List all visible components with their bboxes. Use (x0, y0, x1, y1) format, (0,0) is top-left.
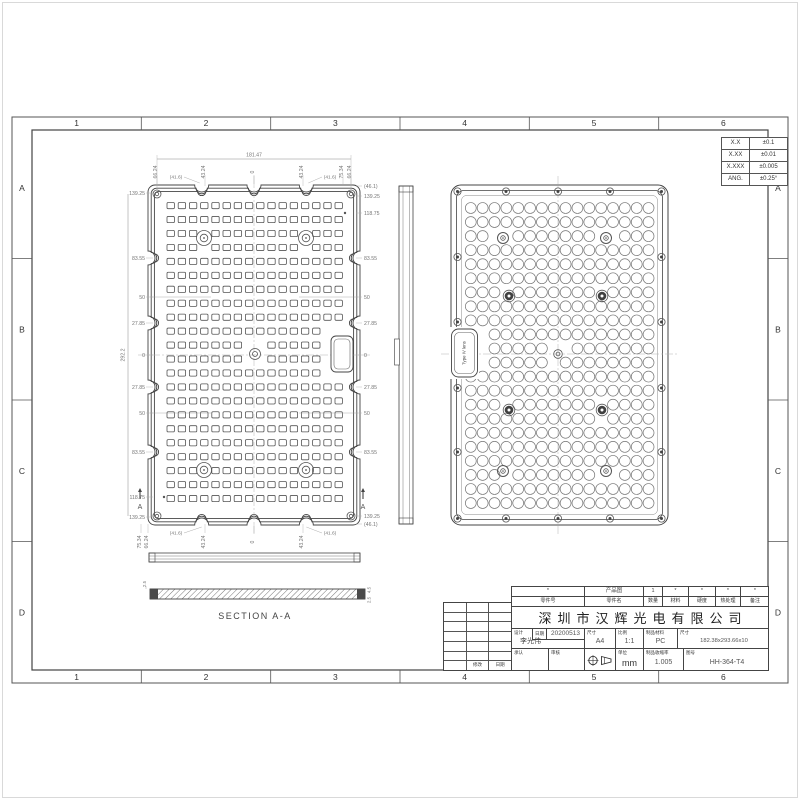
dimension-label: (46.1) (364, 184, 378, 190)
projection-symbol-icon (587, 654, 614, 667)
paper-size-cell: 尺寸 A4 (585, 629, 616, 648)
tolerance-value: ±0.1 (750, 138, 787, 149)
dimension-label: 118.75 (130, 495, 146, 501)
dimension-label: 43.24 (201, 535, 207, 548)
lens-type-tab-label: Type IV lens (462, 341, 467, 365)
zone-column-label: 6 (721, 118, 726, 128)
projection-cell (585, 649, 616, 671)
dimension-label: 50 (364, 295, 370, 301)
revision-cell (444, 652, 467, 661)
zone-column-label: 3 (333, 672, 338, 682)
dimension-label: (41.6) (170, 531, 183, 537)
zone-column-label: 5 (592, 118, 597, 128)
revision-table: 修改日期 (443, 602, 512, 671)
zone-column-label: 6 (721, 672, 726, 682)
company-name: 深圳市汉辉光电有限公司 (512, 607, 768, 629)
tolerance-row: X.XX±0.01 (722, 150, 787, 162)
dimension-label: 50 (364, 411, 370, 417)
designer-cell: 设计 日期 20200513 李光伟 (512, 629, 585, 648)
zone-column-label: 4 (462, 672, 467, 682)
revision-row (444, 632, 511, 642)
revision-row (444, 603, 511, 613)
zone-row-label: B (19, 324, 25, 334)
revision-cell (467, 652, 490, 661)
overall-height-dim: 292.2 (121, 348, 127, 361)
revision-cell: 修改 (467, 661, 490, 670)
side-view-strip (395, 186, 414, 524)
revision-row (444, 642, 511, 652)
dimension-label: 0 (364, 353, 367, 359)
tolerance-label: X.XX (722, 150, 750, 161)
dimension-label: 43.24 (299, 165, 305, 178)
bottom-edge-view (149, 553, 360, 562)
dimension-label: 43.24 (201, 165, 207, 178)
revision-cell: 日期 (489, 661, 511, 670)
tolerance-label: X.X (722, 138, 750, 149)
part-header-label: 零件名 (585, 597, 644, 606)
back-view: Type IV lens (441, 176, 678, 534)
part-header-value: * (663, 587, 689, 596)
part-header-label: 备注 (741, 597, 769, 606)
dimension-label: 43.24 (299, 535, 305, 548)
size-cell: 尺寸 182.38x293.66x10 (678, 629, 770, 648)
zone-column-label: 2 (204, 118, 209, 128)
drawing-number-cell: 图号 HH-364-T4 (684, 649, 770, 671)
material-cell: 制品材料 PC (644, 629, 678, 648)
approve-cell: 承认 (512, 649, 549, 671)
part-header-label: 数量 (644, 597, 663, 606)
zone-row-label: A (19, 183, 25, 193)
tolerance-row: X.X±0.1 (722, 138, 787, 150)
zone-row-label: C (19, 466, 25, 476)
dimension-label: 27.85 (132, 385, 145, 391)
section-arrow-label: A (138, 504, 143, 511)
zone-column-label: 1 (74, 118, 79, 128)
dimension-label: 83.55 (364, 256, 377, 262)
dimension-label: 0 (250, 170, 256, 173)
front-view (138, 176, 370, 534)
dimension-label: (41.6) (324, 175, 337, 181)
size-value: 182.38x293.66x10 (678, 629, 770, 648)
title-block: 修改日期 *产品图1**** 零件号零件名数量材料硬度热处理备注 深圳市汉辉光电… (443, 586, 769, 671)
dimension-label: 139.25 (364, 194, 380, 200)
dimension-label: 75.34 (137, 535, 143, 548)
zone-column-label: 1 (74, 672, 79, 682)
drawing-views: 112233445566AABBCCDD66.2443.24043.2475.3… (0, 0, 800, 800)
part-header-value: * (741, 587, 769, 596)
revision-cell (467, 632, 490, 641)
tolerance-row: X.XXX±0.005 (722, 162, 787, 174)
dimension-label: (41.6) (324, 531, 337, 537)
dimension-label: 83.55 (132, 450, 145, 456)
tolerance-value: ±0.005 (750, 162, 787, 173)
dimension-label: (46.1) (364, 522, 378, 528)
zone-column-label: 3 (333, 118, 338, 128)
dimension-label: 66.24 (153, 165, 159, 178)
design-label: 设计 (514, 630, 523, 636)
part-header-label: 零件号 (512, 597, 585, 606)
tolerance-row: ANG.±0.25° (722, 174, 787, 185)
revision-cell (489, 632, 511, 641)
part-header-label: 热处理 (716, 597, 741, 606)
zone-row-label: D (775, 607, 781, 617)
tolerance-value: ±0.01 (750, 150, 787, 161)
scale-cell: 比例 1:1 (616, 629, 644, 648)
date-value: 20200513 (547, 629, 584, 639)
revision-cell (444, 632, 467, 641)
tolerance-label: X.XXX (722, 162, 750, 173)
revision-row: 修改日期 (444, 661, 511, 670)
revision-cell (489, 652, 511, 661)
dimension-label: 27.85 (364, 385, 377, 391)
revision-cell (444, 613, 467, 622)
zone-column-label: 2 (204, 672, 209, 682)
dimension-label: 4.5 (367, 586, 372, 593)
zone-row-label: C (775, 466, 781, 476)
designer-name: 李光伟 (520, 636, 541, 646)
zone-column-label: 5 (592, 672, 597, 682)
revision-cell (489, 603, 511, 612)
dimension-label: 118.75 (364, 211, 380, 217)
drawing-sheet: 112233445566AABBCCDD66.2443.24043.2475.3… (0, 0, 800, 800)
title-block-main: *产品图1**** 零件号零件名数量材料硬度热处理备注 深圳市汉辉光电有限公司 … (511, 586, 769, 671)
part-header-value: * (716, 587, 741, 596)
revision-cell (444, 642, 467, 651)
part-header-label: 硬度 (689, 597, 716, 606)
section-title: SECTION A-A (218, 611, 292, 621)
revision-cell (444, 603, 467, 612)
dimension-label: 139.25 (129, 191, 145, 197)
revision-cell (467, 622, 490, 631)
part-header-values: *产品图1**** (512, 587, 768, 597)
dimension-label: 66.24 (144, 535, 150, 548)
dimension-label: 83.55 (364, 450, 377, 456)
part-header-value: 产品图 (585, 587, 644, 596)
overall-width-dim: 181.47 (246, 153, 262, 159)
dimension-label: 27.85 (132, 321, 145, 327)
dimension-label: 66.24 (347, 165, 353, 178)
section-arrow-label: A (361, 504, 366, 511)
dimension-label: 2.5 (367, 596, 372, 603)
zone-row-label: B (775, 324, 781, 334)
revision-cell (489, 622, 511, 631)
dimension-label: 139.25 (129, 515, 145, 521)
revision-cell (489, 613, 511, 622)
review-cell: 审核 (549, 649, 585, 671)
tolerance-label: ANG. (722, 174, 750, 185)
dimension-label: 50 (139, 295, 145, 301)
part-header-label: 材料 (663, 597, 689, 606)
dimension-label: 2.5 (142, 580, 147, 587)
dimension-label: 0 (250, 540, 256, 543)
revision-cell (444, 661, 467, 670)
dimension-label: 75.34 (339, 165, 345, 178)
dimension-label: 83.55 (132, 256, 145, 262)
tolerance-table: X.X±0.1X.XX±0.01X.XXX±0.005ANG.±0.25° (721, 137, 788, 186)
unit-cell: 单位 mm (616, 649, 644, 671)
dimension-label: 50 (139, 411, 145, 417)
shrinkage-cell: 制品收缩率 1.005 (644, 649, 684, 671)
part-header-value: 1 (644, 587, 663, 596)
revision-cell (444, 622, 467, 631)
dimension-label: 139.25 (364, 514, 380, 520)
revision-cell (467, 642, 490, 651)
tolerance-value: ±0.25° (750, 174, 787, 185)
drawing-number-value: HH-364-T4 (684, 649, 770, 671)
part-header-value: * (512, 587, 585, 596)
revision-row (444, 652, 511, 662)
zone-column-label: 4 (462, 118, 467, 128)
revision-cell (467, 603, 490, 612)
dimension-label: 0 (142, 353, 145, 359)
section-view: 2.54.52.5SECTION A-A (142, 580, 372, 621)
part-header-value: * (689, 587, 716, 596)
revision-row (444, 613, 511, 623)
part-header-labels: 零件号零件名数量材料硬度热处理备注 (512, 597, 768, 607)
dimension-label: 27.85 (364, 321, 377, 327)
revision-cell (489, 642, 511, 651)
zone-row-label: D (19, 607, 25, 617)
revision-cell (467, 613, 490, 622)
revision-row (444, 622, 511, 632)
dimension-label: (41.6) (170, 175, 183, 181)
